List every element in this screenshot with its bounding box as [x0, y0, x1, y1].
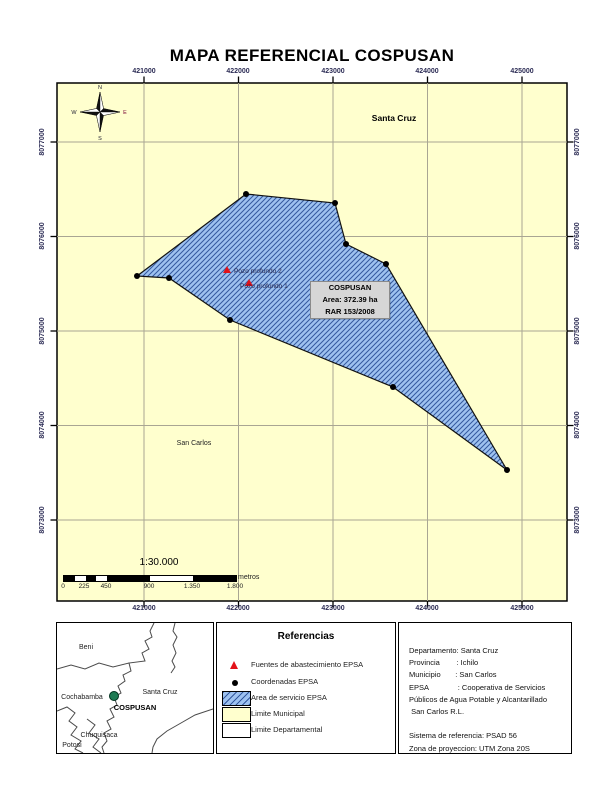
legend-item-departmental-limit: Limite Departamental — [217, 722, 395, 738]
departmental-limit-swatch — [222, 723, 251, 738]
x-axis-tick-label: 424000 — [397, 68, 457, 75]
scale-tick-label: 1.350 — [177, 583, 207, 590]
scale-tick-label: 900 — [134, 583, 164, 590]
info-line: San Carlos R.L. — [409, 706, 569, 718]
y-axis-tick-label: 8077000 — [39, 120, 49, 164]
municipality-label: San Carlos — [162, 440, 226, 447]
x-axis-tick-label: 424000 — [397, 605, 457, 612]
locator-map-panel[interactable]: Beni Cochabamba Santa Cruz COSPUSAN Chuq… — [56, 622, 214, 754]
info-panel-text: Departamento: Santa Cruz Provincia : Ich… — [409, 645, 569, 755]
legend-item-sources: Fuentes de abastecimiento EPSA — [217, 657, 395, 673]
x-axis-tick-label: 423000 — [303, 68, 363, 75]
area-info-area: Area: 372.39 ha — [311, 294, 389, 306]
page-title: MAPA REFERENCIAL COSPUSAN — [57, 46, 567, 66]
info-panel: Departamento: Santa Cruz Provincia : Ich… — [398, 622, 572, 754]
locator-map: Beni Cochabamba Santa Cruz COSPUSAN Chuq… — [57, 623, 213, 753]
x-axis-tick-label: 421000 — [114, 605, 174, 612]
scale-unit-label: metros — [238, 574, 259, 581]
x-axis-tick-label: 422000 — [208, 605, 268, 612]
info-line — [409, 718, 569, 730]
y-axis-tick-label: 8073000 — [39, 498, 49, 542]
compass-n-label: N — [98, 85, 102, 91]
legend-item-coordinates: Coordenadas EPSA — [217, 674, 395, 690]
service-area-swatch — [222, 691, 251, 706]
locator-label-beni: Beni — [79, 644, 93, 651]
scale-tick-label: 1.800 — [220, 583, 250, 590]
department-label: Santa Cruz — [362, 113, 426, 123]
locator-marker-icon[interactable] — [110, 692, 119, 701]
y-axis-tick-label: 8074000 — [39, 403, 49, 447]
y-axis-tick-label: 8073000 — [574, 498, 584, 542]
x-axis-tick-label: 423000 — [303, 605, 363, 612]
y-axis-tick-label: 8077000 — [574, 120, 584, 164]
legend-panel: Referencias Fuentes de abastecimiento EP… — [216, 622, 396, 754]
scale-bar — [63, 575, 237, 582]
locator-label-cochabamba: Cochabamba — [61, 694, 103, 701]
locator-label-potosi: Potosi — [62, 742, 82, 749]
area-info-name: COSPUSAN — [311, 282, 389, 294]
x-axis-tick-label: 425000 — [492, 605, 552, 612]
y-axis-tick-label: 8076000 — [574, 214, 584, 258]
y-axis-tick-label: 8074000 — [574, 403, 584, 447]
x-axis-tick-label: 425000 — [492, 68, 552, 75]
legend-title: Referencias — [217, 631, 395, 642]
y-axis-tick-label: 8076000 — [39, 214, 49, 258]
coordinate-dot-icon — [232, 680, 238, 686]
scale-tick-label: 450 — [91, 583, 121, 590]
compass-w-label: W — [71, 110, 77, 116]
municipal-limit-swatch — [222, 707, 251, 722]
info-line: Provincia : Ichilo — [409, 657, 569, 669]
info-line: Públicos de Agua Potable y Alcantarillad… — [409, 694, 569, 706]
compass-s-label: S — [98, 136, 102, 142]
well-2-label: Pozo profundo 2 — [234, 268, 282, 275]
locator-label-santa-cruz: Santa Cruz — [142, 689, 178, 696]
x-axis-tick-label: 421000 — [114, 68, 174, 75]
info-line: Departamento: Santa Cruz — [409, 645, 569, 657]
legend-item-service-area: Area de servicio EPSA — [217, 690, 395, 706]
info-line: EPSA : Cooperativa de Servicios — [409, 682, 569, 694]
info-line: Municipio : San Carlos — [409, 669, 569, 681]
locator-label-chuquisaca: Chuquisaca — [81, 732, 118, 739]
well-marker-icon — [230, 661, 238, 669]
area-info-rar: RAR 153/2008 — [311, 306, 389, 318]
y-axis-tick-label: 8075000 — [39, 309, 49, 353]
main-map[interactable]: Pozo profundo 2 Pozo profundo 1 N S E W — [49, 75, 575, 609]
well-1-label: Pozo profundo 1 — [240, 283, 288, 290]
y-axis-tick-label: 8075000 — [574, 309, 584, 353]
x-axis-tick-label: 422000 — [208, 68, 268, 75]
scale-ratio-label: 1:30.000 — [109, 557, 209, 568]
legend-item-municipal-limit: Limite Municipal — [217, 706, 395, 722]
area-info-box[interactable]: COSPUSAN Area: 372.39 ha RAR 153/2008 — [310, 281, 390, 319]
map-document-page: MAPA REFERENCIAL COSPUSAN — [0, 0, 612, 792]
info-line: Sistema de referencia: PSAD 56 — [409, 730, 569, 742]
info-line: Zona de proyeccion: UTM Zona 20S — [409, 743, 569, 755]
compass-e-label: E — [123, 110, 127, 116]
locator-marker-label: COSPUSAN — [114, 703, 157, 712]
